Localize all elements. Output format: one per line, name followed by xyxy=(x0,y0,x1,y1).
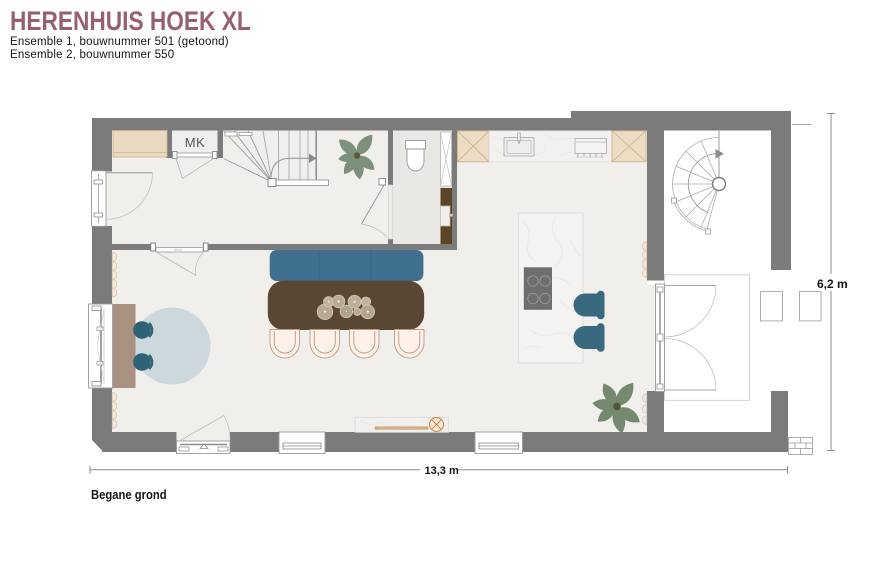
svg-text:13,3 m: 13,3 m xyxy=(425,465,459,477)
svg-text:MK: MK xyxy=(185,135,206,150)
svg-text:6,2 m: 6,2 m xyxy=(817,277,848,291)
